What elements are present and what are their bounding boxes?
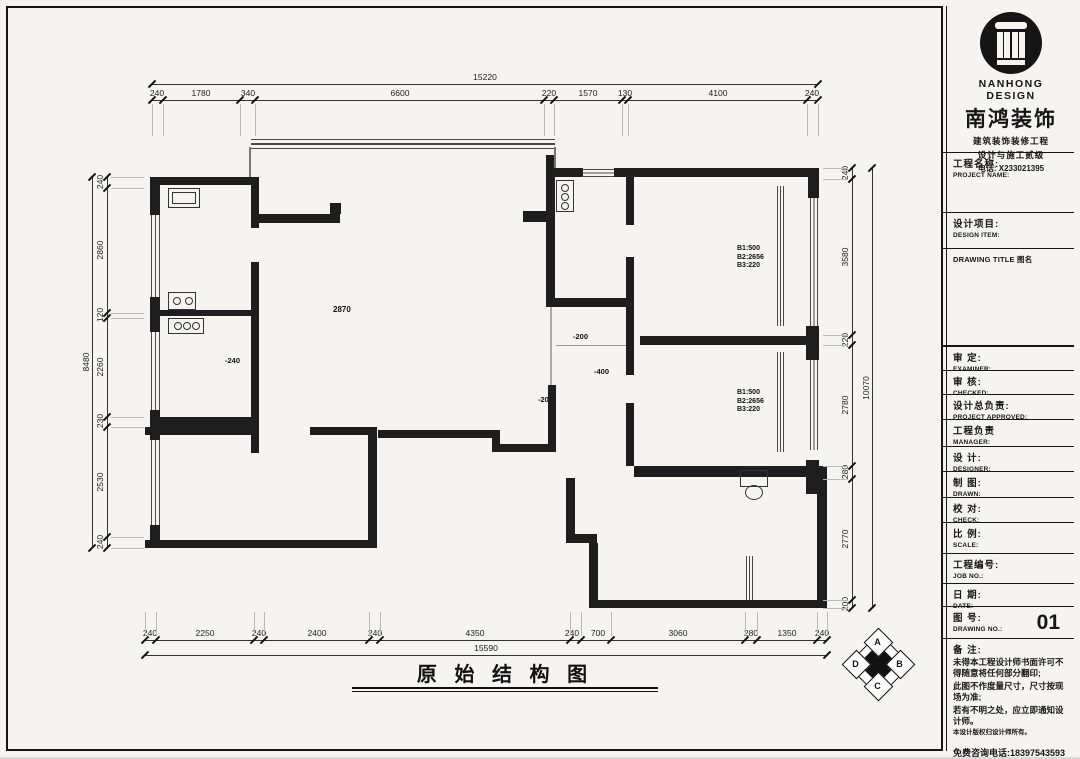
project-approved-field: 设计总负责: PROJECT APPROVED: bbox=[943, 394, 1074, 419]
guide-line bbox=[145, 612, 146, 636]
dim-label: 15220 bbox=[473, 72, 497, 82]
burner-icon bbox=[173, 297, 181, 305]
wall-segment bbox=[808, 168, 819, 198]
dim-label: 240 bbox=[150, 88, 164, 98]
dim-label: 240 bbox=[95, 175, 105, 189]
chain-line bbox=[145, 655, 827, 656]
compass-letter-e: B bbox=[890, 654, 909, 673]
guide-line bbox=[369, 612, 370, 636]
notes-label: 备 注: bbox=[953, 642, 1069, 656]
burner-icon bbox=[174, 322, 182, 330]
wall-segment bbox=[330, 203, 341, 214]
compass-letter-s: C bbox=[868, 676, 887, 695]
wall-segment bbox=[626, 307, 634, 345]
chain-line bbox=[550, 307, 552, 385]
window-spec-bedroom2: B1:500 B2:2656 B3:220 bbox=[737, 389, 764, 415]
wall-segment bbox=[523, 211, 548, 222]
row-label-cn: 比 例: bbox=[953, 526, 1069, 540]
wall-segment bbox=[634, 466, 819, 477]
manager-field: 工程负责 MANAGER: bbox=[943, 419, 1074, 446]
chain-line bbox=[152, 84, 818, 85]
guide-line bbox=[264, 612, 265, 636]
title-block: NANHONG DESIGN 南鸿装饰 建筑装饰装修工程 设计与施工贰级 电话:… bbox=[941, 6, 1074, 751]
guide-line bbox=[823, 168, 848, 169]
wall-segment bbox=[251, 177, 259, 228]
notes-field: 备 注: 未得本工程设计师书面许可不得随意将任何部分翻印; 此图不作度量尺寸，尺… bbox=[943, 638, 1074, 749]
dim-label: 6600 bbox=[391, 88, 410, 98]
wall-segment bbox=[566, 534, 597, 543]
wall-segment bbox=[150, 310, 259, 316]
wall-segment bbox=[378, 430, 500, 438]
guide-line bbox=[111, 427, 144, 428]
guide-line bbox=[628, 104, 629, 136]
level-mark: -200 bbox=[573, 332, 588, 341]
dim-label: 2260 bbox=[95, 358, 105, 377]
brand-name-cn: 南鸿装饰 bbox=[953, 103, 1069, 133]
wall-segment bbox=[806, 326, 819, 360]
wall-segment bbox=[626, 403, 634, 466]
spec-line: B2:2656 bbox=[737, 254, 764, 263]
wall-segment bbox=[368, 427, 377, 548]
row-label-cn: 设 计: bbox=[953, 450, 1069, 464]
ceiling-height-label: 2870 bbox=[333, 305, 351, 314]
designer-field: 设 计: DESIGNER: bbox=[943, 446, 1074, 471]
guide-line bbox=[163, 104, 164, 136]
compass-letter-n: A bbox=[868, 632, 887, 651]
chain-line bbox=[352, 687, 658, 689]
wall-segment bbox=[150, 177, 160, 215]
guide-line bbox=[622, 104, 623, 136]
brand-subtitle: 建筑装饰装修工程 bbox=[953, 135, 1069, 147]
dim-label: 700 bbox=[591, 628, 605, 638]
floor-plan: 15220 240 1780 340 6600 220 1570 130 410… bbox=[0, 0, 1080, 757]
wall-segment bbox=[150, 410, 160, 440]
dim-label: 2860 bbox=[95, 241, 105, 260]
window-spec-bedroom1: B1:500 B2:2656 B3:220 bbox=[737, 245, 764, 271]
guide-line bbox=[818, 104, 819, 136]
guide-line bbox=[255, 104, 256, 136]
burner-icon bbox=[185, 297, 193, 305]
chain-line bbox=[249, 147, 251, 177]
toilet-icon bbox=[745, 485, 763, 500]
dim-label: 220 bbox=[542, 88, 556, 98]
row-label-en: SCALE: bbox=[953, 542, 1069, 549]
guide-line bbox=[823, 479, 848, 480]
dim-label: 240 bbox=[805, 88, 819, 98]
date-field: 日 期: DATE: bbox=[943, 583, 1074, 606]
wall-segment bbox=[251, 427, 259, 453]
dim-label: 2770 bbox=[840, 530, 850, 549]
dim-label: 240 bbox=[95, 535, 105, 549]
wall-segment bbox=[626, 177, 634, 225]
guide-line bbox=[111, 318, 144, 319]
burner-icon bbox=[183, 322, 191, 330]
window-glazing bbox=[251, 139, 555, 149]
spec-line: B3:220 bbox=[737, 262, 764, 271]
dim-label: 2530 bbox=[95, 473, 105, 492]
window-glazing bbox=[582, 169, 614, 177]
wall-segment bbox=[150, 177, 259, 185]
window-glazing bbox=[151, 440, 160, 525]
guide-line bbox=[240, 104, 241, 136]
compass-letter-w: D bbox=[846, 654, 865, 673]
window-glazing bbox=[151, 332, 160, 410]
chain-line bbox=[92, 177, 93, 548]
wall-segment bbox=[145, 540, 377, 548]
dim-label: 3580 bbox=[840, 248, 850, 267]
fixture-symbol bbox=[172, 192, 196, 204]
guide-line bbox=[544, 104, 545, 136]
wall-segment bbox=[589, 543, 598, 608]
row-label-cn: 制 图: bbox=[953, 475, 1069, 489]
guide-line bbox=[823, 345, 848, 346]
design-item-field: 设计项目: DESIGN ITEM: bbox=[943, 212, 1074, 248]
guide-line bbox=[823, 179, 848, 180]
company-logo-block: NANHONG DESIGN 南鸿装饰 建筑装饰装修工程 设计与施工贰级 电话:… bbox=[943, 6, 1074, 152]
roman-column-icon bbox=[980, 12, 1042, 74]
drawing-title-field: DRAWING TITLE 图名 bbox=[943, 248, 1074, 345]
drawn-field: 制 图: DRAWN: bbox=[943, 471, 1074, 497]
wall-segment bbox=[150, 417, 259, 427]
spec-line: B3:220 bbox=[737, 406, 764, 415]
wall-segment bbox=[640, 336, 819, 345]
row-label-cn: 工程编号: bbox=[953, 557, 1069, 571]
window-glazing bbox=[777, 186, 784, 326]
guide-line bbox=[807, 104, 808, 136]
wall-segment bbox=[553, 168, 583, 177]
design-item-label-cn: 设计项目: bbox=[953, 216, 1069, 230]
check-field: 校 对: CHECK: bbox=[943, 497, 1074, 522]
dim-label: 2400 bbox=[308, 628, 327, 638]
chain-line bbox=[352, 691, 658, 692]
guide-line bbox=[156, 612, 157, 636]
job-no-field: 工程编号: JOB NO.: bbox=[943, 553, 1074, 583]
chain-line bbox=[556, 345, 626, 346]
window-glazing bbox=[810, 198, 818, 326]
row-label-cn: 日 期: bbox=[953, 587, 1069, 601]
guide-line bbox=[570, 612, 571, 636]
row-label-cn: 工程负责 bbox=[953, 423, 1069, 437]
guide-line bbox=[111, 177, 144, 178]
row-label-cn: 审 核: bbox=[953, 374, 1069, 388]
checked-field: 审 核: CHECKED: bbox=[943, 370, 1074, 394]
note-line: 未得本工程设计师书面许可不得随意将任何部分翻印; bbox=[953, 657, 1069, 680]
wall-segment bbox=[492, 444, 556, 452]
spec-line: B1:500 bbox=[737, 245, 764, 254]
guide-line bbox=[611, 612, 612, 636]
guide-line bbox=[817, 612, 818, 636]
window-glazing bbox=[810, 360, 818, 450]
chain-line bbox=[554, 147, 556, 168]
guide-line bbox=[111, 417, 144, 418]
project-name-label-cn: 工程名称: bbox=[953, 156, 1069, 170]
dim-label: 2780 bbox=[840, 396, 850, 415]
guide-line bbox=[581, 612, 582, 636]
design-item-label-en: DESIGN ITEM: bbox=[953, 232, 1069, 239]
wall-segment bbox=[589, 600, 827, 608]
row-label-cn: 校 对: bbox=[953, 501, 1069, 515]
guide-line bbox=[823, 608, 848, 609]
guide-line bbox=[823, 466, 848, 467]
row-label-en: MANAGER: bbox=[953, 439, 1069, 446]
guide-line bbox=[254, 612, 255, 636]
wall-segment bbox=[492, 430, 500, 446]
dim-tick bbox=[814, 80, 822, 88]
guide-line bbox=[380, 612, 381, 636]
wall-segment bbox=[553, 298, 634, 307]
dim-label: 10070 bbox=[861, 376, 871, 400]
level-mark: -240 bbox=[225, 356, 240, 365]
project-name-field: 工程名称: PROJECT NAME: bbox=[943, 152, 1074, 212]
guide-line bbox=[111, 548, 144, 549]
brand-name-en: NANHONG DESIGN bbox=[953, 78, 1069, 102]
drawing-title-label: DRAWING TITLE 图名 bbox=[953, 254, 1069, 265]
drawing-number-value: 01 bbox=[1037, 611, 1060, 635]
project-name-label-en: PROJECT NAME: bbox=[953, 172, 1069, 179]
chain-line bbox=[872, 168, 873, 608]
note-line: 此图不作度量尺寸，尺寸按现场为准; bbox=[953, 681, 1069, 704]
row-label-cn: 设计总负责: bbox=[953, 398, 1069, 412]
spec-line: B1:500 bbox=[737, 389, 764, 398]
dim-tick bbox=[868, 604, 876, 612]
drawing-title: 原 始 结 构 图 bbox=[417, 658, 593, 687]
wall-segment bbox=[546, 155, 555, 307]
guide-line bbox=[152, 104, 153, 136]
dim-label: 8480 bbox=[81, 353, 91, 372]
wall-segment bbox=[310, 427, 377, 435]
chain-line bbox=[852, 168, 853, 608]
wall-segment bbox=[150, 297, 160, 332]
window-glazing bbox=[746, 556, 753, 600]
window-glazing bbox=[777, 352, 784, 452]
guide-line bbox=[823, 335, 848, 336]
spec-line: B2:2656 bbox=[737, 398, 764, 407]
scale-field: 比 例: SCALE: bbox=[943, 522, 1074, 553]
wall-segment bbox=[548, 385, 556, 452]
wall-segment bbox=[150, 525, 160, 548]
note-line: 本设计版权归设计师所有。 bbox=[953, 729, 1069, 738]
guide-line bbox=[111, 537, 144, 538]
dim-label: 1570 bbox=[579, 88, 598, 98]
guide-line bbox=[823, 600, 848, 601]
guide-line bbox=[111, 188, 144, 189]
wall-segment bbox=[817, 466, 827, 608]
dim-tick bbox=[823, 651, 831, 659]
guide-line bbox=[827, 612, 828, 636]
wall-segment bbox=[626, 345, 634, 375]
guide-line bbox=[757, 612, 758, 636]
dim-label: 1780 bbox=[192, 88, 211, 98]
guide-line bbox=[111, 313, 144, 314]
examiner-field: 审 定: EXAMINER: bbox=[943, 345, 1074, 370]
wall-segment bbox=[259, 214, 340, 223]
drawing-sheet: 15220 240 1780 340 6600 220 1570 130 410… bbox=[0, 0, 1080, 757]
dim-label: 1350 bbox=[778, 628, 797, 638]
wall-segment bbox=[251, 262, 259, 316]
dim-label: 3060 bbox=[669, 628, 688, 638]
chain-line bbox=[107, 177, 108, 548]
burner-icon bbox=[561, 193, 569, 201]
dim-label: 4100 bbox=[709, 88, 728, 98]
north-compass: A B C D bbox=[845, 631, 911, 697]
guide-line bbox=[745, 612, 746, 636]
note-line: 若有不明之处，应立即通知设计师。 bbox=[953, 705, 1069, 728]
chain-line bbox=[145, 640, 827, 641]
wall-segment bbox=[626, 257, 634, 307]
wall-segment bbox=[614, 168, 819, 177]
row-label-cn: 审 定: bbox=[953, 350, 1069, 364]
dim-label: 2250 bbox=[196, 628, 215, 638]
burner-icon bbox=[561, 202, 569, 210]
dim-label: 4350 bbox=[466, 628, 485, 638]
wall-segment bbox=[145, 427, 251, 435]
guide-line bbox=[554, 104, 555, 136]
row-label-en: JOB NO.: bbox=[953, 573, 1069, 580]
wall-segment bbox=[251, 316, 259, 417]
level-mark: -400 bbox=[594, 367, 609, 376]
wall-segment bbox=[566, 478, 575, 542]
drawing-no-field: 图 号: DRAWING NO.: 01 bbox=[943, 606, 1074, 638]
burner-icon bbox=[192, 322, 200, 330]
burner-icon bbox=[561, 184, 569, 192]
window-glazing bbox=[151, 215, 160, 297]
dim-label: 15590 bbox=[474, 643, 498, 653]
